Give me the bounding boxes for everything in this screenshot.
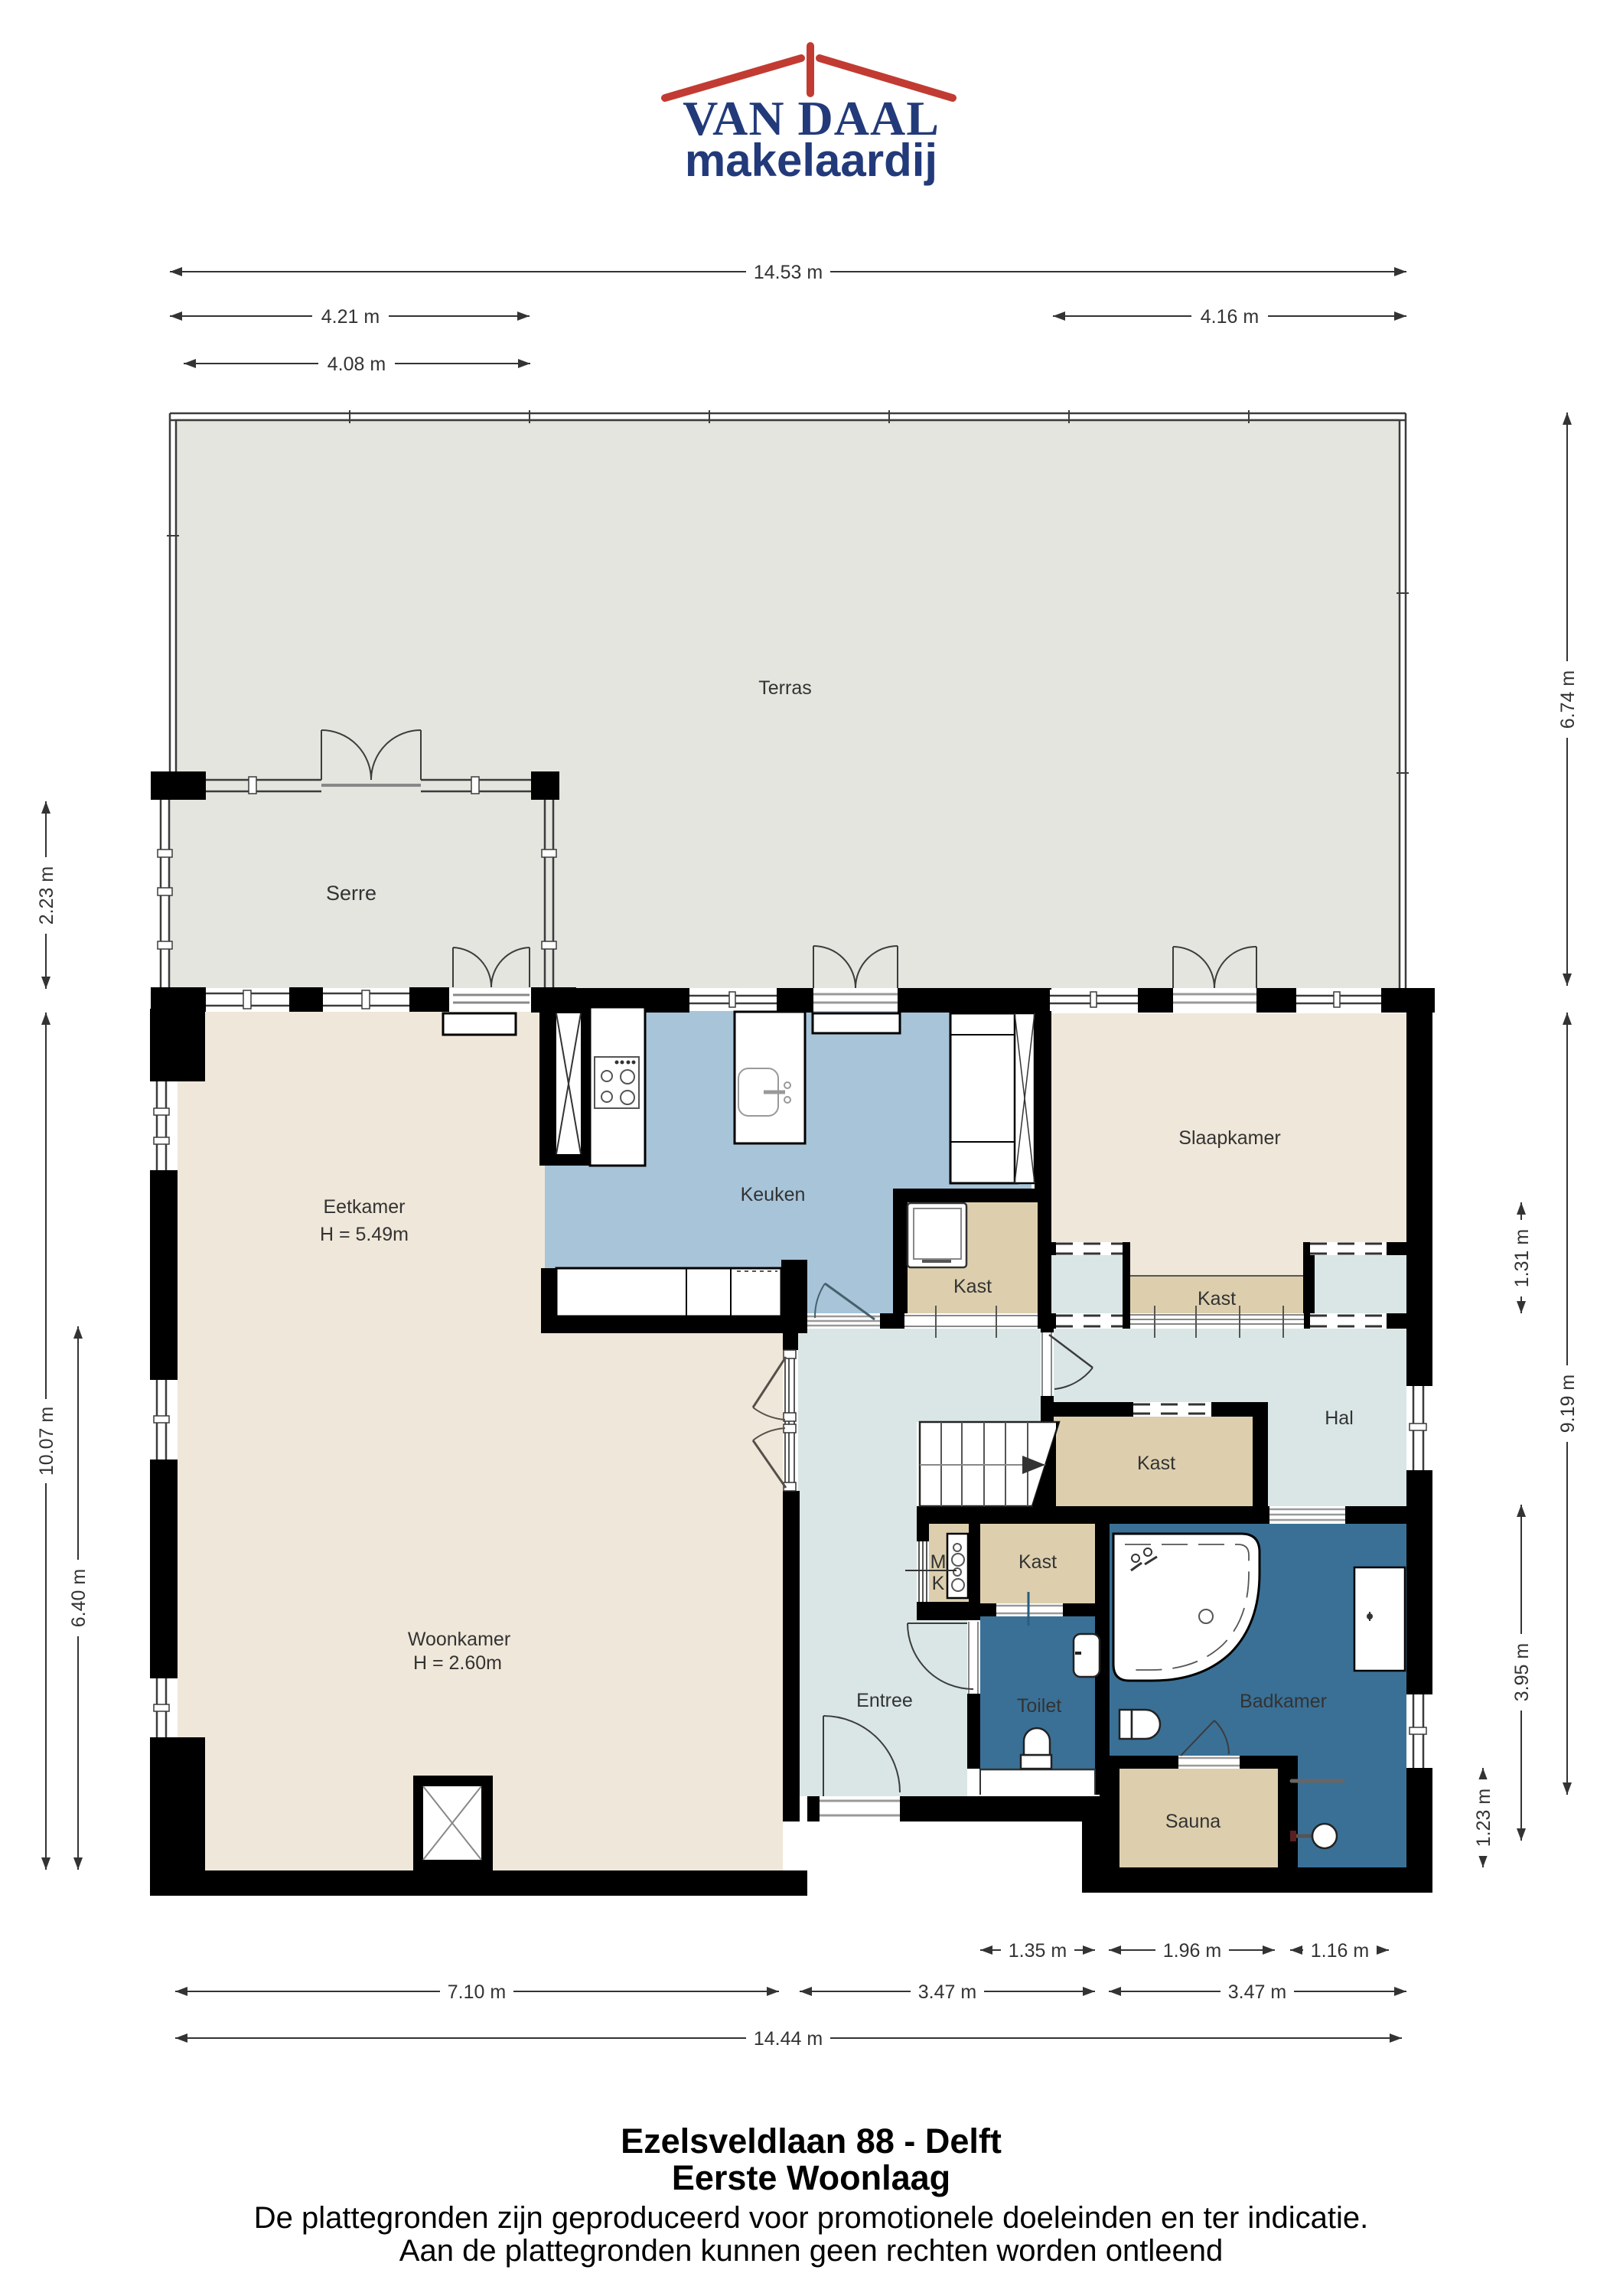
svg-text:6.74 m: 6.74 m <box>1557 670 1579 729</box>
svg-text:H = 5.49m: H = 5.49m <box>320 1224 409 1245</box>
svg-text:1.35 m: 1.35 m <box>1009 1940 1067 1962</box>
svg-text:Ezelsveldlaan 88 - Delft: Ezelsveldlaan 88 - Delft <box>621 2122 1002 2161</box>
svg-text:Eerste Woonlaag: Eerste Woonlaag <box>672 2158 950 2197</box>
svg-text:Toilet: Toilet <box>1017 1695 1061 1717</box>
svg-text:makelaardij: makelaardij <box>685 135 937 186</box>
svg-text:Terras: Terras <box>758 677 811 699</box>
svg-text:1.23 m: 1.23 m <box>1473 1789 1494 1847</box>
svg-text:6.40 m: 6.40 m <box>68 1569 90 1627</box>
svg-text:4.21 m: 4.21 m <box>321 306 380 328</box>
svg-text:M: M <box>930 1551 947 1573</box>
svg-text:Kast: Kast <box>1018 1551 1057 1573</box>
svg-text:K: K <box>932 1573 945 1594</box>
svg-text:Woonkamer: Woonkamer <box>408 1629 510 1650</box>
svg-text:3.47 m: 3.47 m <box>918 1981 976 2003</box>
svg-text:2.23 m: 2.23 m <box>36 866 57 925</box>
svg-text:1.31 m: 1.31 m <box>1511 1229 1533 1287</box>
svg-text:3.95 m: 3.95 m <box>1511 1643 1533 1701</box>
svg-text:Aan de plattegronden kunnen ge: Aan de plattegronden kunnen geen rechten… <box>399 2234 1223 2268</box>
svg-text:Keuken: Keuken <box>741 1184 806 1205</box>
svg-text:3.47 m: 3.47 m <box>1228 1981 1286 2003</box>
svg-text:Entree: Entree <box>856 1690 913 1711</box>
svg-text:De plattegronden zijn geproduc: De plattegronden zijn geproduceerd voor … <box>254 2201 1369 2235</box>
svg-text:Hal: Hal <box>1325 1407 1354 1429</box>
svg-text:10.07 m: 10.07 m <box>36 1407 57 1476</box>
svg-text:Eetkamer: Eetkamer <box>324 1196 406 1218</box>
svg-text:7.10 m: 7.10 m <box>448 1981 506 2003</box>
svg-text:4.16 m: 4.16 m <box>1201 306 1259 328</box>
svg-text:14.53 m: 14.53 m <box>754 262 823 283</box>
svg-text:1.16 m: 1.16 m <box>1311 1940 1369 1962</box>
svg-text:Slaapkamer: Slaapkamer <box>1178 1127 1280 1149</box>
svg-text:1.96 m: 1.96 m <box>1163 1940 1221 1962</box>
svg-text:Badkamer: Badkamer <box>1240 1691 1327 1712</box>
svg-text:H = 2.60m: H = 2.60m <box>413 1652 502 1674</box>
svg-text:Sauna: Sauna <box>1165 1811 1221 1832</box>
svg-text:Kast: Kast <box>1198 1288 1236 1309</box>
svg-text:Kast: Kast <box>953 1276 992 1297</box>
svg-text:14.44 m: 14.44 m <box>754 2028 823 2050</box>
svg-text:Serre: Serre <box>326 882 376 905</box>
svg-text:Kast: Kast <box>1137 1453 1175 1474</box>
svg-text:9.19 m: 9.19 m <box>1557 1375 1579 1433</box>
svg-text:4.08 m: 4.08 m <box>328 354 386 375</box>
